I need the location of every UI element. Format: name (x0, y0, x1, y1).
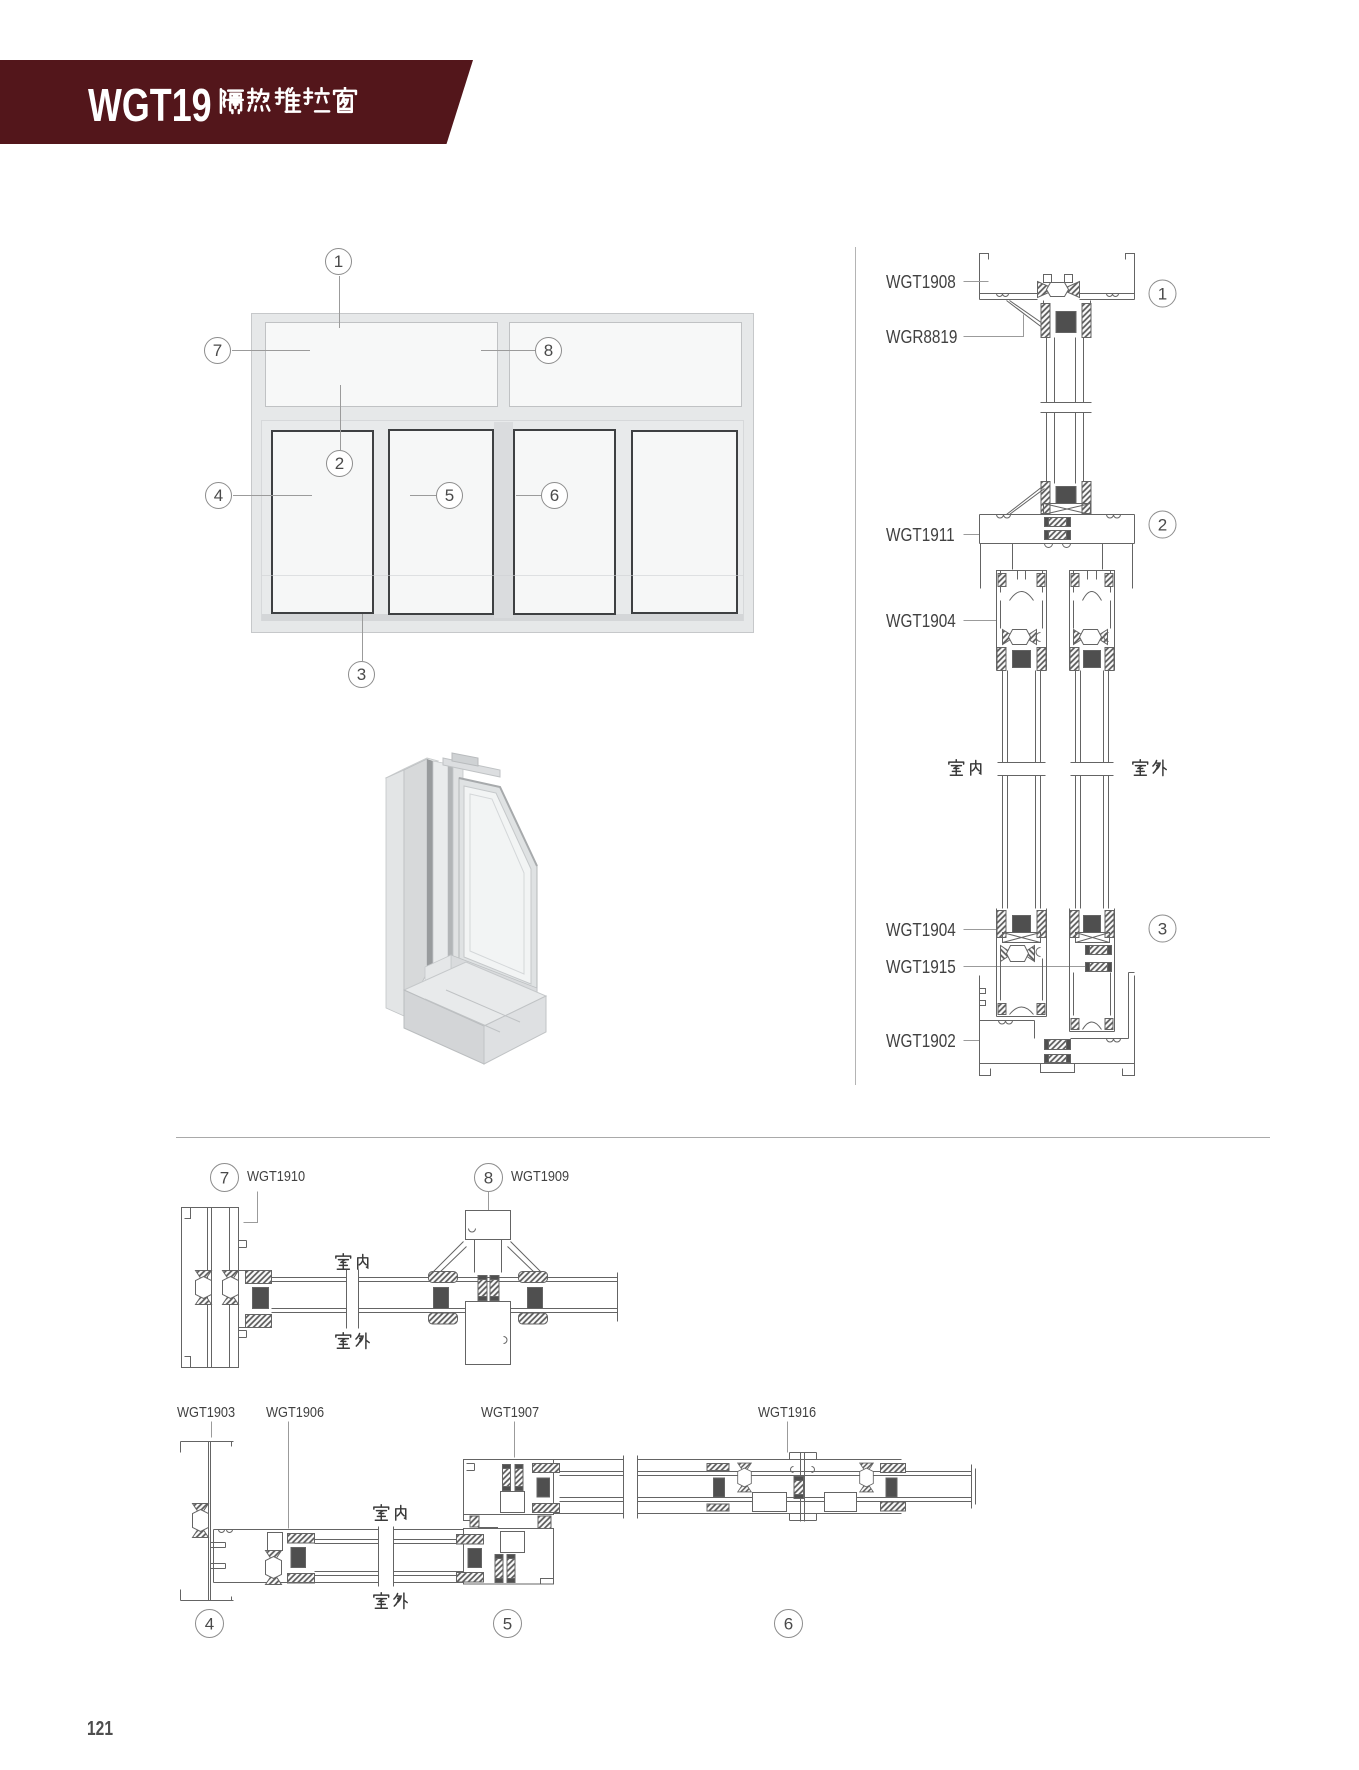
svg-text:6: 6 (784, 1615, 793, 1634)
svg-text:4: 4 (205, 1615, 214, 1634)
svg-text:5: 5 (503, 1615, 512, 1634)
svg-text:7: 7 (220, 1169, 229, 1188)
svg-text:1: 1 (1158, 285, 1167, 304)
svg-text:3: 3 (1158, 920, 1167, 939)
svg-text:2: 2 (1158, 516, 1167, 535)
svg-text:8: 8 (484, 1169, 493, 1188)
